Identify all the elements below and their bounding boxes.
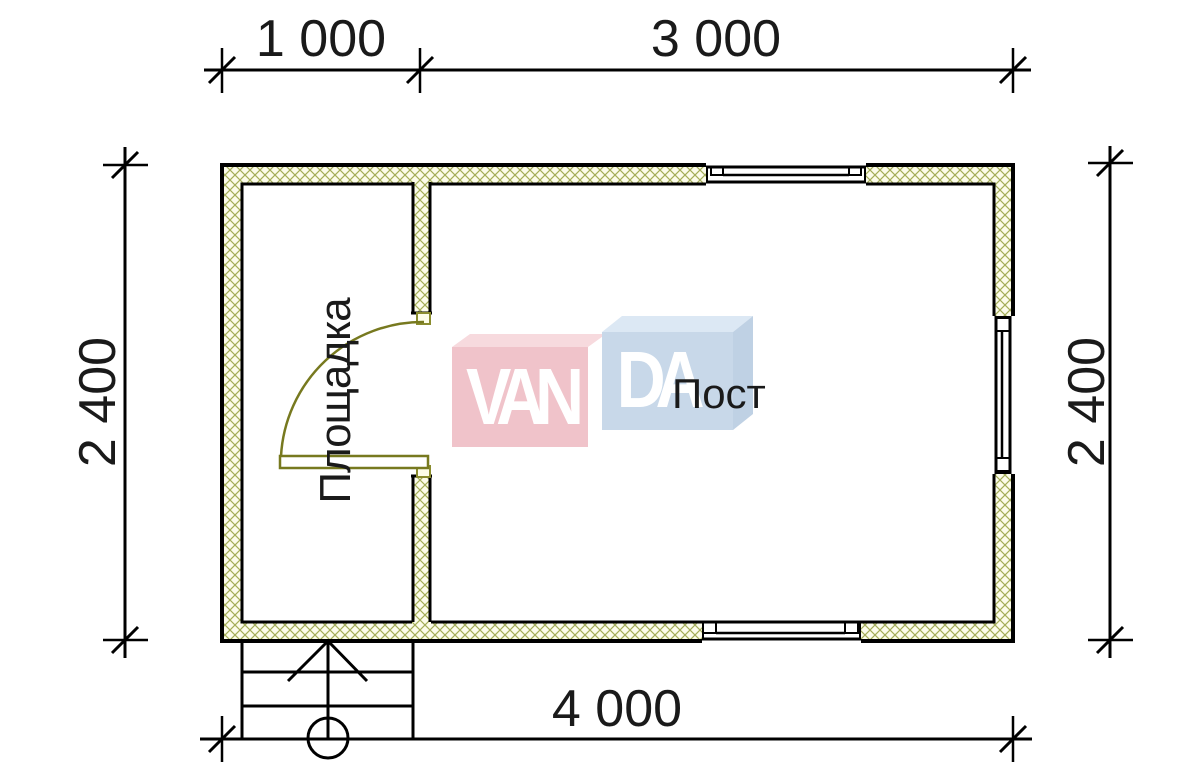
logo-text-van: VAN	[462, 347, 578, 447]
room-label-post: Пост	[672, 373, 766, 415]
partition-wall	[411, 168, 432, 637]
direction-arrow	[288, 641, 367, 738]
dim-label-right: 2 400	[1061, 337, 1113, 467]
dim-label-top-left: 1 000	[256, 13, 386, 65]
dim-label-bottom: 4 000	[552, 683, 682, 735]
dim-label-top-right: 3 000	[651, 13, 781, 65]
dim-label-left: 2 400	[72, 337, 124, 467]
window-bottom	[702, 618, 861, 644]
logo-pink-top-face	[452, 334, 606, 347]
floor-plan-canvas: VAN DA 1 000 3 000 4 000 2 400 2 400 Пло…	[0, 0, 1200, 772]
window-top	[706, 162, 866, 186]
window-right	[992, 316, 1015, 474]
room-label-ploshchadka: Площадка	[314, 298, 358, 503]
